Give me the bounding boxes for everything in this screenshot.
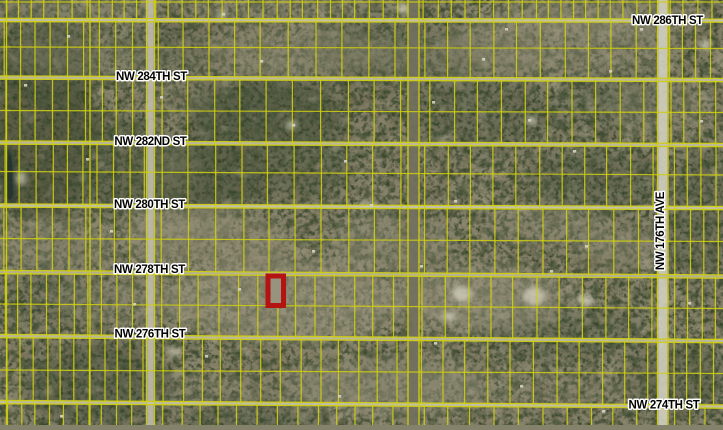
svg-text:NW 278TH ST: NW 278TH ST <box>114 264 185 276</box>
svg-text:NW 276TH ST: NW 276TH ST <box>115 329 186 341</box>
svg-text:NW 282ND ST: NW 282ND ST <box>114 136 187 148</box>
svg-text:NW 274TH ST: NW 274TH ST <box>629 400 700 412</box>
svg-text:NW 280TH ST: NW 280TH ST <box>114 199 185 211</box>
svg-text:NW 284TH ST: NW 284TH ST <box>116 71 187 83</box>
svg-text:NW 176TH AVE: NW 176TH AVE <box>655 191 667 270</box>
svg-text:NW 286TH ST: NW 286TH ST <box>632 15 703 27</box>
